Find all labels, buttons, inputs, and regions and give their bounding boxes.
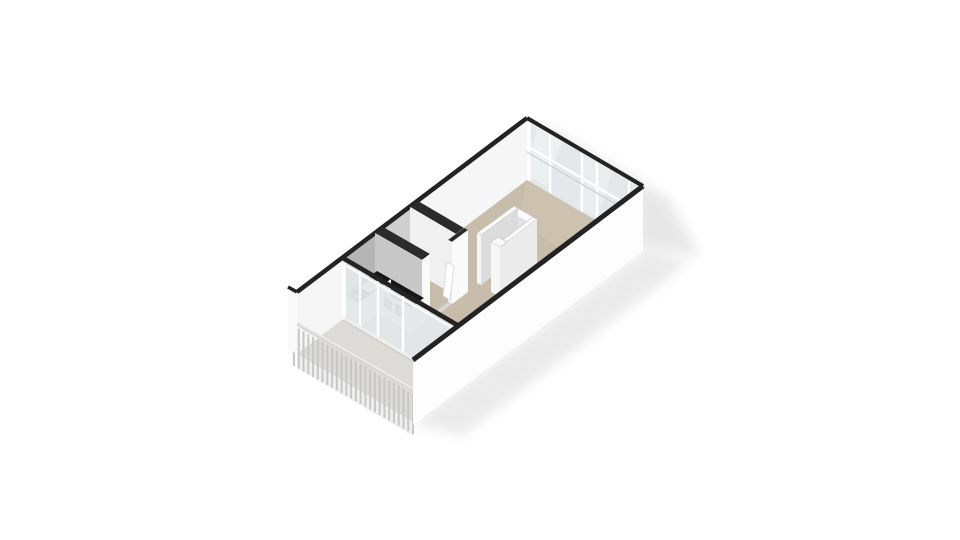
floorplan-canvas — [0, 0, 960, 540]
wardrobe-end-cap — [477, 233, 481, 285]
wardrobe-face-sw — [491, 242, 500, 297]
bathroom-front-wall-face — [452, 230, 468, 304]
west-wall-stub — [288, 287, 297, 354]
floorplan-3d — [0, 0, 960, 540]
